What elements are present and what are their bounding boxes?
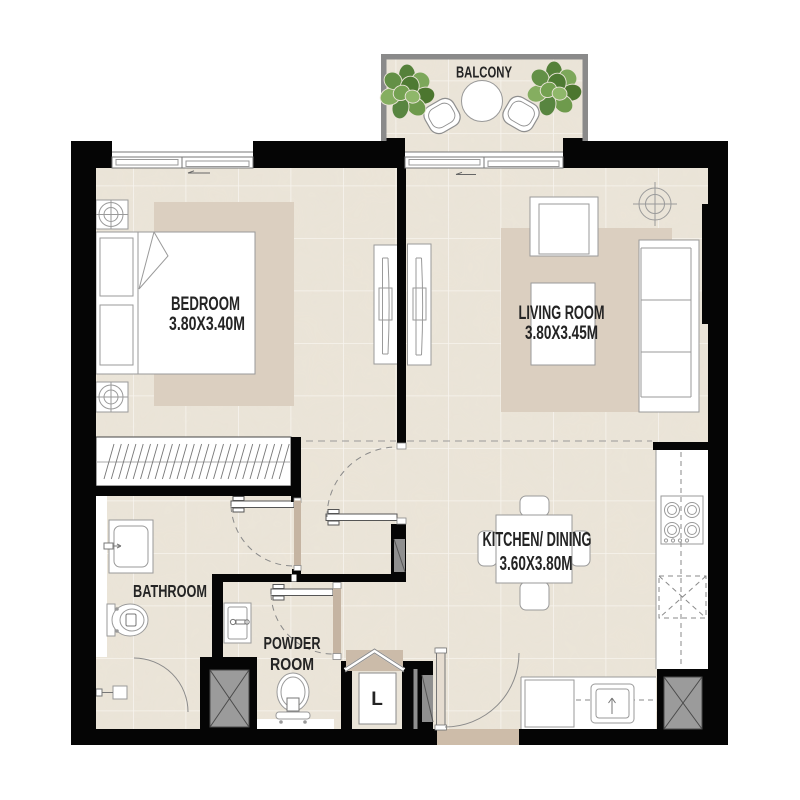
svg-text:3.80X3.45M: 3.80X3.45M <box>525 323 598 344</box>
svg-text:LIVING ROOM: LIVING ROOM <box>519 303 605 324</box>
svg-text:3.60X3.80M: 3.60X3.80M <box>500 553 573 575</box>
svg-text:POWDER: POWDER <box>264 633 321 653</box>
svg-text:3.80X3.40M: 3.80X3.40M <box>169 314 245 335</box>
svg-text:BATHROOM: BATHROOM <box>133 581 207 601</box>
svg-text:BALCONY: BALCONY <box>456 65 512 82</box>
svg-text:KITCHEN/ DINING: KITCHEN/ DINING <box>483 529 592 551</box>
svg-text:BEDROOM: BEDROOM <box>171 294 240 315</box>
svg-text:ROOM: ROOM <box>270 654 314 674</box>
svg-text:L: L <box>371 689 383 710</box>
